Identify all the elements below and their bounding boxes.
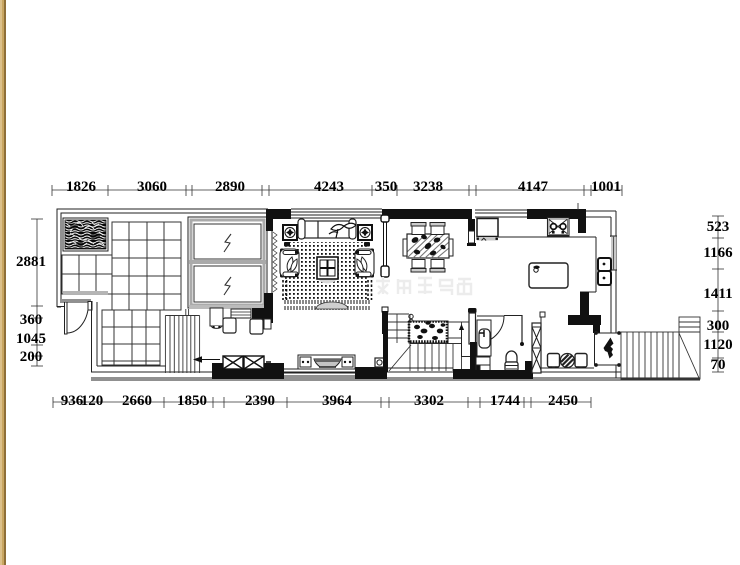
svg-text:3238: 3238 [413,179,443,195]
svg-text:360: 360 [20,312,43,328]
svg-text:3302: 3302 [414,393,444,409]
svg-text:3964: 3964 [322,393,353,409]
svg-text:523: 523 [707,219,730,235]
svg-text:1850: 1850 [177,393,207,409]
svg-text:3060: 3060 [137,179,167,195]
svg-text:2881: 2881 [16,254,46,270]
svg-text:2390: 2390 [245,393,275,409]
svg-text:1001: 1001 [591,179,621,195]
svg-text:2890: 2890 [215,179,245,195]
svg-text:1826: 1826 [66,179,97,195]
svg-text:1411: 1411 [703,286,732,302]
svg-text:2450: 2450 [548,393,578,409]
svg-text:1744: 1744 [490,393,521,409]
svg-text:4243: 4243 [314,179,344,195]
svg-text:1120: 1120 [703,337,732,353]
svg-text:200: 200 [20,349,43,365]
svg-text:2660: 2660 [122,393,152,409]
svg-text:70: 70 [711,357,726,373]
svg-text:4147: 4147 [518,179,549,195]
svg-text:1045: 1045 [16,331,46,347]
svg-text:120: 120 [81,393,104,409]
svg-text:1166: 1166 [703,245,733,261]
svg-text:300: 300 [707,318,730,334]
svg-text:350: 350 [375,179,398,195]
